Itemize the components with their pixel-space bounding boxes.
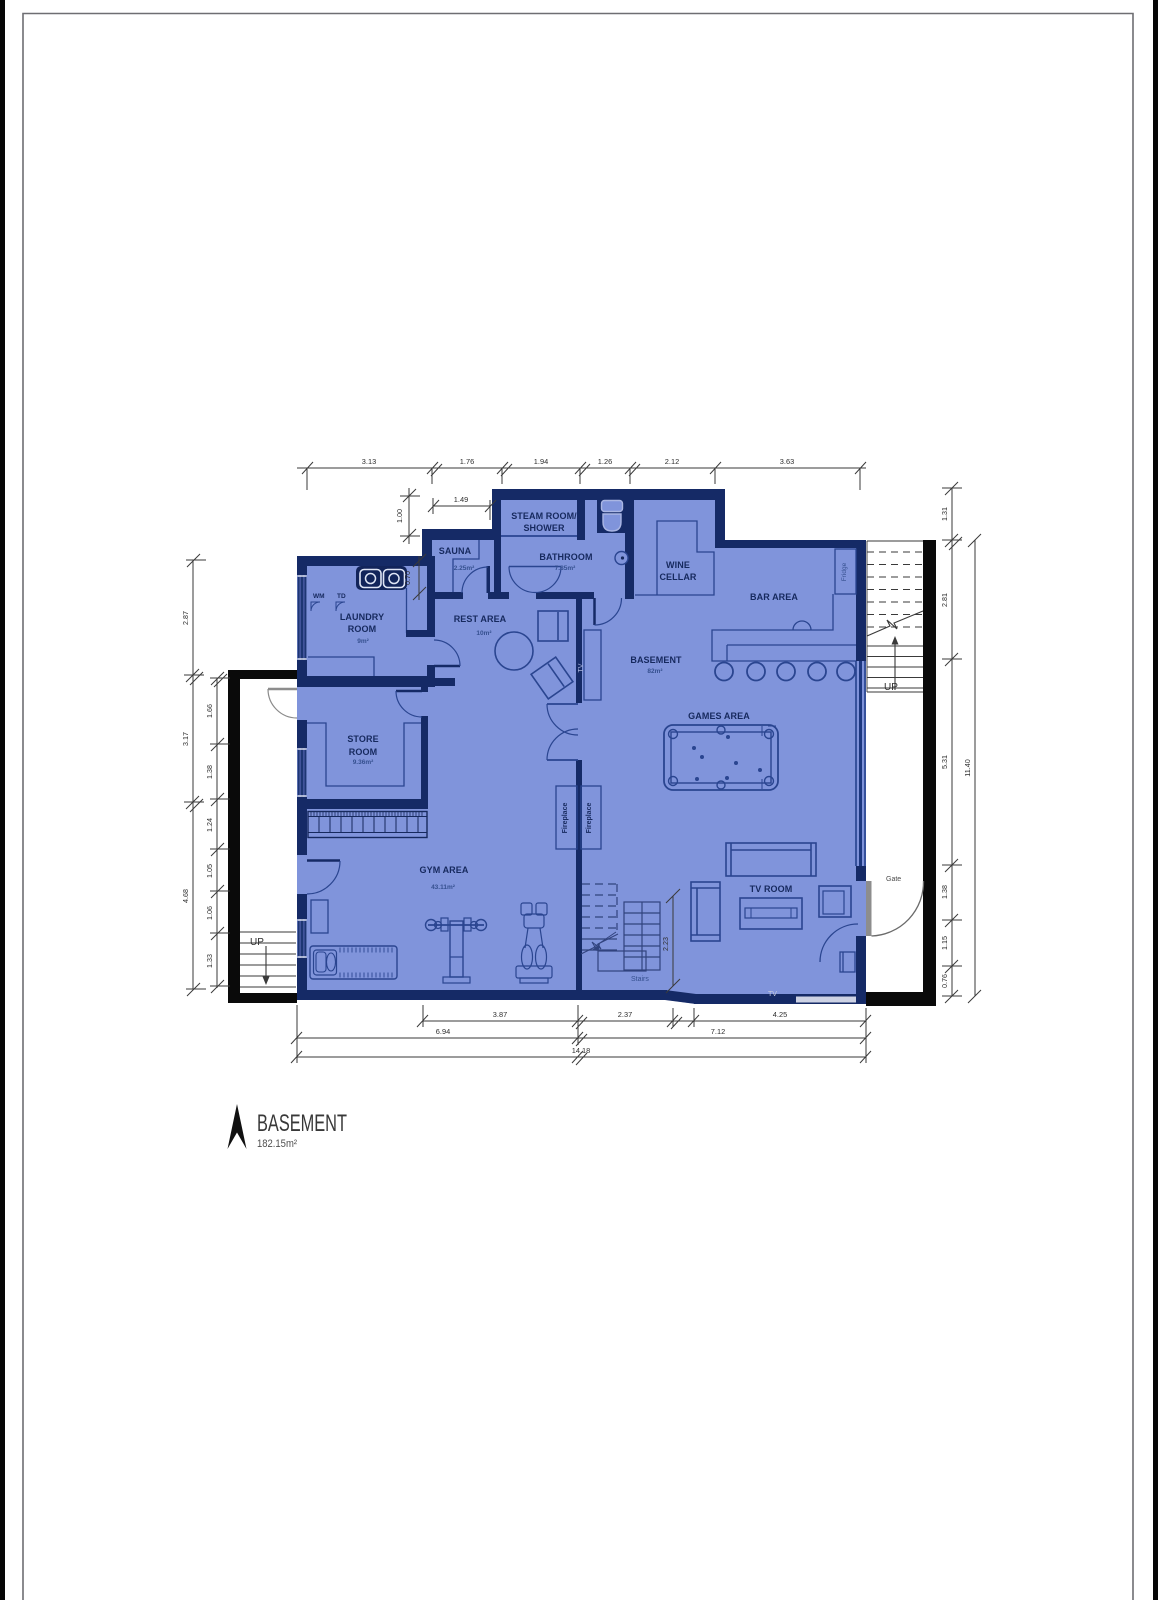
svg-text:1.15: 1.15	[940, 936, 949, 950]
svg-text:1.24: 1.24	[205, 818, 214, 832]
svg-text:1.31: 1.31	[940, 507, 949, 521]
svg-text:10m²: 10m²	[476, 630, 492, 637]
svg-text:9.36m²: 9.36m²	[353, 759, 374, 766]
svg-text:GAMES AREA: GAMES AREA	[688, 711, 750, 721]
svg-text:43.11m²: 43.11m²	[431, 884, 456, 891]
svg-text:SAUNA: SAUNA	[439, 546, 472, 556]
svg-text:STEAM ROOM/: STEAM ROOM/	[511, 511, 577, 521]
svg-text:Stairs: Stairs	[631, 976, 649, 983]
svg-text:1.00: 1.00	[395, 509, 404, 523]
svg-text:182.15m²: 182.15m²	[257, 1138, 297, 1150]
svg-text:3.63: 3.63	[780, 457, 794, 466]
svg-text:82m²: 82m²	[647, 668, 663, 675]
svg-text:ROOM: ROOM	[348, 624, 376, 634]
svg-text:1.33: 1.33	[205, 954, 214, 968]
svg-text:5.31: 5.31	[940, 755, 949, 769]
svg-text:1.05: 1.05	[205, 864, 214, 878]
svg-text:UP: UP	[884, 682, 898, 693]
svg-text:BASEMENT: BASEMENT	[630, 655, 682, 665]
svg-text:TV ROOM: TV ROOM	[750, 884, 793, 894]
svg-text:2.25m²: 2.25m²	[454, 565, 475, 572]
svg-text:BATHROOM: BATHROOM	[539, 552, 592, 562]
svg-text:11.40: 11.40	[963, 759, 972, 776]
svg-text:1.38: 1.38	[940, 885, 949, 899]
svg-text:3.13: 3.13	[362, 457, 376, 466]
svg-text:TV: TV	[768, 991, 777, 998]
svg-text:4.68: 4.68	[181, 889, 190, 903]
svg-text:REST AREA: REST AREA	[454, 614, 507, 624]
svg-text:GYM AREA: GYM AREA	[420, 865, 469, 875]
svg-text:1.66: 1.66	[205, 704, 214, 718]
svg-text:2.12: 2.12	[665, 457, 679, 466]
svg-text:7.12: 7.12	[711, 1027, 725, 1036]
svg-text:2.87: 2.87	[181, 611, 190, 625]
svg-text:ROOM: ROOM	[349, 747, 377, 757]
svg-text:1.49: 1.49	[454, 495, 468, 504]
svg-text:2.37: 2.37	[618, 1010, 632, 1019]
svg-text:WM: WM	[313, 593, 325, 600]
svg-text:Fireplace: Fireplace	[586, 803, 593, 834]
svg-text:1.06: 1.06	[205, 906, 214, 920]
svg-text:SHOWER: SHOWER	[523, 523, 565, 533]
svg-text:UP: UP	[250, 937, 264, 948]
svg-text:STORE: STORE	[347, 734, 378, 744]
svg-text:Fridge: Fridge	[841, 562, 848, 581]
svg-text:9m²: 9m²	[357, 638, 369, 645]
svg-text:6.94: 6.94	[436, 1027, 450, 1036]
svg-text:TD: TD	[337, 593, 346, 600]
svg-text:1.76: 1.76	[460, 457, 474, 466]
svg-text:Gate: Gate	[886, 876, 901, 883]
svg-text:2.23: 2.23	[661, 937, 670, 951]
svg-text:0.76: 0.76	[940, 974, 949, 988]
svg-text:4.25: 4.25	[773, 1010, 787, 1019]
svg-text:BASEMENT: BASEMENT	[257, 1110, 347, 1137]
svg-text:CELLAR: CELLAR	[659, 572, 696, 582]
svg-text:WINE: WINE	[666, 560, 690, 570]
svg-text:7.85m²: 7.85m²	[555, 565, 576, 572]
svg-text:BAR AREA: BAR AREA	[750, 592, 798, 602]
svg-text:LAUNDRY: LAUNDRY	[340, 612, 384, 622]
svg-text:2.81: 2.81	[940, 593, 949, 607]
svg-text:1.94: 1.94	[534, 457, 548, 466]
svg-text:3.17: 3.17	[181, 732, 190, 746]
svg-text:Fireplace: Fireplace	[562, 803, 569, 834]
svg-text:0.70: 0.70	[403, 571, 412, 585]
svg-text:14.18: 14.18	[572, 1046, 591, 1055]
svg-text:1.26: 1.26	[598, 457, 612, 466]
svg-text:1.38: 1.38	[205, 765, 214, 779]
svg-text:3.87: 3.87	[493, 1010, 507, 1019]
